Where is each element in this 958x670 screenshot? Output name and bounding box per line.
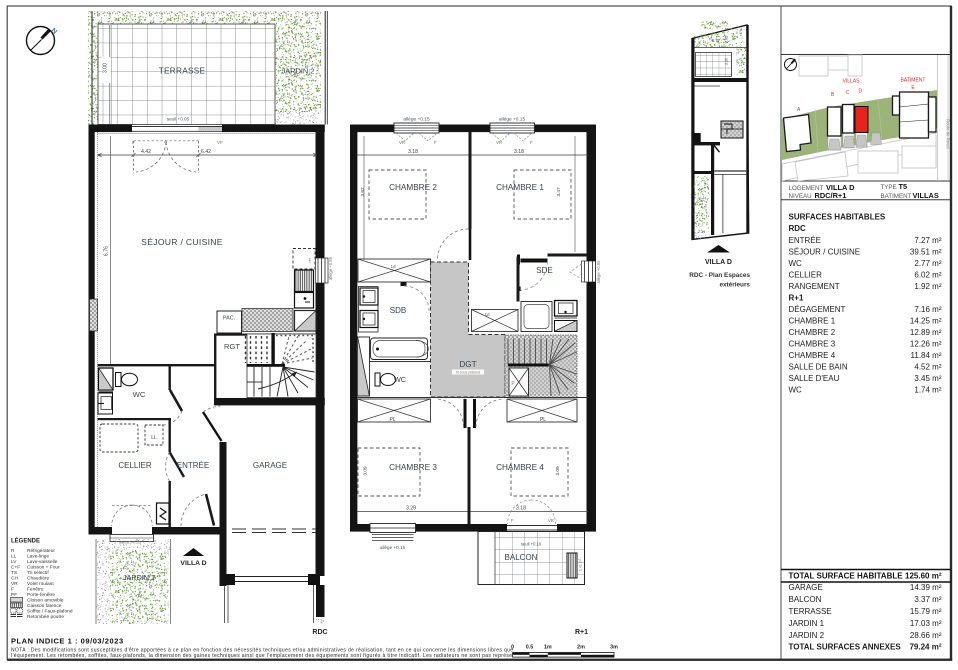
svg-text:NIVEAU: NIVEAU [789, 193, 812, 200]
svg-text:LÉGENDE: LÉGENDE [11, 537, 40, 545]
svg-text:0.5: 0.5 [526, 645, 534, 651]
svg-text:5.81: 5.81 [700, 198, 704, 205]
svg-text:C+F: C+F [11, 565, 20, 571]
svg-text:TOTAL SURFACE HABITABLE: TOTAL SURFACE HABITABLE [789, 572, 904, 581]
svg-text:4.52 m²: 4.52 m² [914, 363, 941, 372]
svg-text:RANGEMENT: RANGEMENT [789, 282, 840, 291]
svg-text:12.26 m²: 12.26 m² [910, 340, 942, 349]
svg-text:CHAMBRE 3: CHAMBRE 3 [789, 340, 836, 349]
svg-text:BALCON: BALCON [505, 553, 538, 562]
svg-text:T5: T5 [899, 182, 908, 191]
svg-text:3.47: 3.47 [556, 187, 562, 197]
svg-text:7.16 m²: 7.16 m² [914, 305, 941, 314]
svg-text:F: F [11, 586, 14, 592]
svg-text:PLAN INDICE 1 : 09/03/2023: PLAN INDICE 1 : 09/03/2023 [11, 637, 124, 646]
svg-text:CHAMBRE 1: CHAMBRE 1 [789, 317, 836, 326]
svg-text:14.39 m²: 14.39 m² [910, 583, 942, 592]
svg-text:CHAMBRE 2: CHAMBRE 2 [389, 183, 437, 192]
svg-text:BATIMENT: BATIMENT [881, 193, 912, 200]
svg-text:3.00: 3.00 [103, 63, 109, 73]
svg-text:6.77: 6.77 [712, 38, 721, 43]
svg-text:7.27 m²: 7.27 m² [914, 236, 941, 245]
svg-text:allège +0.15: allège +0.15 [403, 117, 430, 123]
svg-text:WC: WC [789, 386, 803, 395]
svg-text:SURFACES HABITABLES: SURFACES HABITABLES [789, 213, 886, 222]
svg-text:Caisson faïence: Caisson faïence [27, 603, 62, 609]
svg-text:Cloison amovible: Cloison amovible [27, 598, 64, 604]
svg-text:GARAGE: GARAGE [253, 461, 287, 470]
svg-text:3.18: 3.18 [408, 149, 418, 155]
svg-text:VILLAS: VILLAS [843, 79, 861, 85]
svg-text:1.74 m²: 1.74 m² [914, 386, 941, 395]
svg-text:SALLE DE BAIN: SALLE DE BAIN [789, 363, 848, 372]
svg-text:VILLA D: VILLA D [180, 560, 206, 567]
svg-text:TERRASSE: TERRASSE [159, 67, 206, 76]
svg-text:F: F [434, 140, 437, 145]
svg-text:CHAMBRE 2: CHAMBRE 2 [789, 328, 836, 337]
svg-text:Tri sélectif: Tri sélectif [27, 570, 49, 576]
svg-text:TOTAL SURFACES ANNEXES: TOTAL SURFACES ANNEXES [789, 643, 902, 652]
svg-text:3.09: 3.09 [555, 466, 561, 476]
svg-text:seuil +0.05: seuil +0.05 [167, 117, 190, 122]
svg-text:VR: VR [11, 581, 18, 587]
svg-text:GARAGE: GARAGE [789, 583, 823, 592]
svg-text:Lave-linge: Lave-linge [27, 554, 49, 560]
svg-text:TS: TS [11, 570, 17, 576]
svg-text:SALLE D'EAU: SALLE D'EAU [789, 374, 840, 383]
svg-text:12.89 m²: 12.89 m² [910, 328, 942, 337]
svg-text:WC: WC [789, 259, 803, 268]
svg-text:2.77 m²: 2.77 m² [914, 259, 941, 268]
svg-text:CHAMBRE 1: CHAMBRE 1 [496, 183, 544, 192]
svg-text:extérieurs: extérieurs [719, 282, 750, 289]
svg-text:allège +0.15: allège +0.15 [499, 117, 526, 123]
svg-text:Retombée poutre: Retombée poutre [27, 614, 64, 620]
svg-text:3.37 m²: 3.37 m² [914, 595, 941, 604]
svg-text:CHAMBRE 4: CHAMBRE 4 [789, 351, 836, 360]
svg-text:3.09: 3.09 [363, 466, 369, 476]
svg-text:R+1: R+1 [575, 629, 588, 636]
svg-text:2m: 2m [577, 645, 585, 651]
svg-text:2.39: 2.39 [698, 230, 705, 234]
svg-text:WC: WC [394, 375, 407, 384]
svg-text:3.18: 3.18 [516, 506, 526, 512]
svg-text:BALCON: BALCON [789, 595, 822, 604]
svg-text:R: R [11, 548, 15, 554]
svg-text:6.76: 6.76 [104, 246, 110, 256]
svg-text:C: C [846, 90, 850, 96]
svg-text:LV: LV [11, 559, 17, 565]
svg-text:Route de Revel: Route de Revel [946, 119, 951, 149]
svg-text:F: F [530, 140, 533, 145]
svg-text:3.29: 3.29 [406, 506, 416, 512]
svg-text:allège +0.95: allège +0.95 [328, 256, 333, 280]
svg-text:Soffite / Faux-plafond: Soffite / Faux-plafond [27, 608, 73, 614]
svg-text:BATIMENT: BATIMENT [901, 78, 926, 84]
svg-text:6.02 m²: 6.02 m² [914, 271, 941, 280]
svg-text:Lave-vaisselle: Lave-vaisselle [27, 559, 58, 565]
svg-text:ENTRÉE: ENTRÉE [789, 236, 821, 245]
svg-text:1d: 1d [484, 312, 490, 317]
svg-text:seuil +0.10: seuil +0.10 [521, 542, 542, 547]
svg-text:LL: LL [151, 435, 157, 441]
svg-text:LL: LL [11, 554, 17, 560]
svg-text:TYPE: TYPE [881, 184, 897, 191]
svg-text:39.51 m²: 39.51 m² [910, 248, 942, 257]
svg-text:PL: PL [389, 417, 395, 423]
svg-text:Chaudière: Chaudière [27, 576, 49, 582]
svg-text:RDC: RDC [789, 224, 807, 233]
svg-text:3.18: 3.18 [514, 149, 524, 155]
svg-text:3.00: 3.00 [725, 58, 729, 65]
svg-text:CELLIER: CELLIER [118, 461, 152, 470]
svg-text:SÉJOUR / CUISINE: SÉJOUR / CUISINE [789, 248, 861, 257]
svg-text:CHAMBRE 3: CHAMBRE 3 [389, 463, 437, 472]
svg-text:RDC/R+1: RDC/R+1 [815, 191, 847, 200]
svg-text:VR: VR [548, 518, 554, 523]
svg-text:ENTRÉE: ENTRÉE [177, 461, 209, 470]
svg-text:D: D [859, 89, 863, 95]
svg-text:VILLAS: VILLAS [913, 191, 939, 200]
svg-text:SÉJOUR / CUISINE: SÉJOUR / CUISINE [141, 237, 223, 247]
svg-text:réf.: réf. [308, 257, 312, 262]
svg-text:allège +0.15: allège +0.15 [380, 545, 406, 550]
svg-text:0: 0 [511, 645, 514, 651]
svg-text:DÉGAGEMENT: DÉGAGEMENT [789, 305, 846, 314]
svg-text:WC: WC [133, 390, 146, 399]
svg-text:3.62: 3.62 [360, 187, 366, 197]
svg-text:CH: CH [11, 576, 18, 582]
svg-text:PF: PF [11, 592, 17, 598]
svg-text:17.03 m²: 17.03 m² [910, 619, 942, 628]
svg-text:l'équipement. Les retombées, s: l'équipement. Les retombées, soffites, f… [11, 653, 525, 659]
svg-text:RDC: RDC [312, 629, 327, 636]
svg-text:ht sous plafond: ht sous plafond [456, 371, 480, 375]
svg-text:Fenêtre: Fenêtre [27, 586, 44, 592]
svg-text:RDC - Plan Espaces: RDC - Plan Espaces [689, 272, 750, 279]
svg-text:CELLIER: CELLIER [789, 271, 823, 280]
svg-text:79.24 m²: 79.24 m² [909, 643, 941, 652]
svg-text:PL: PL [540, 417, 546, 423]
svg-text:28.66 m²: 28.66 m² [910, 631, 942, 640]
svg-text:1m: 1m [544, 645, 552, 651]
svg-text:Réfrigérateur: Réfrigérateur [27, 548, 55, 554]
svg-text:15.79 m²: 15.79 m² [910, 607, 942, 616]
svg-text:RGT: RGT [224, 342, 240, 351]
svg-text:R+1: R+1 [789, 294, 804, 303]
svg-text:11.84 m²: 11.84 m² [911, 351, 942, 360]
svg-text:JARDIN 2: JARDIN 2 [789, 631, 825, 640]
svg-text:3.45 m²: 3.45 m² [914, 374, 941, 383]
svg-text:4.42: 4.42 [141, 149, 151, 155]
svg-text:JARDIN 2: JARDIN 2 [282, 67, 315, 76]
svg-text:PAC.: PAC. [223, 316, 235, 322]
svg-text:VILLA D: VILLA D [705, 259, 732, 266]
svg-text:3.05: 3.05 [725, 36, 729, 43]
svg-text:JARDIN 1: JARDIN 1 [789, 619, 825, 628]
svg-text:JARDIN 1: JARDIN 1 [123, 573, 155, 582]
svg-text:1.41 m²: 1.41 m² [579, 558, 583, 571]
svg-text:Cuisson + Four: Cuisson + Four [27, 565, 60, 571]
svg-text:allège +0.95: allège +0.95 [596, 260, 601, 284]
svg-text:14.25 m²: 14.25 m² [910, 317, 942, 326]
svg-text:SDB: SDB [390, 306, 406, 315]
svg-text:1d: 1d [390, 264, 396, 269]
svg-text:TERRASSE: TERRASSE [789, 607, 832, 616]
svg-text:Volet roulant: Volet roulant [27, 581, 54, 587]
svg-text:F: F [511, 518, 514, 523]
svg-text:VF: VF [217, 140, 223, 145]
svg-text:SDE: SDE [536, 266, 552, 275]
svg-text:6.42: 6.42 [201, 149, 211, 155]
svg-text:DGT: DGT [459, 360, 476, 369]
svg-text:CHAMBRE 4: CHAMBRE 4 [496, 463, 544, 472]
svg-text:125.60 m²: 125.60 m² [905, 572, 942, 581]
svg-text:3m: 3m [610, 645, 618, 651]
svg-text:1.92 m²: 1.92 m² [914, 282, 941, 291]
svg-text:F: F [132, 140, 135, 145]
svg-text:Porte-fenêtre: Porte-fenêtre [27, 592, 55, 598]
